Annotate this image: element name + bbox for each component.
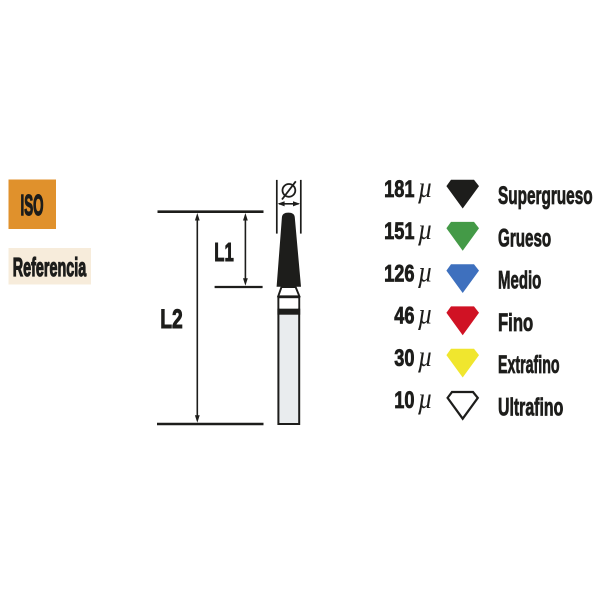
svg-text:Grueso: Grueso <box>498 224 551 252</box>
svg-text:30: 30 <box>394 345 414 372</box>
svg-text:Ultrafino: Ultrafino <box>498 393 563 421</box>
svg-text:L2: L2 <box>160 304 183 334</box>
svg-text:L1: L1 <box>214 237 234 267</box>
svg-text:ISO: ISO <box>21 190 44 222</box>
svg-text:Supergrueso: Supergrueso <box>498 182 593 210</box>
svg-text:181: 181 <box>384 176 414 203</box>
svg-text:µ: µ <box>418 340 433 373</box>
svg-text:µ: µ <box>418 213 433 246</box>
svg-text:46: 46 <box>394 303 414 330</box>
svg-text:µ: µ <box>418 255 433 288</box>
svg-text:Medio: Medio <box>498 267 541 295</box>
svg-text:151: 151 <box>384 218 414 245</box>
svg-text:µ: µ <box>418 298 433 331</box>
svg-text:10: 10 <box>394 387 414 414</box>
svg-text:Extrafino: Extrafino <box>498 351 560 379</box>
svg-text:126: 126 <box>384 260 414 287</box>
svg-text:Referencia: Referencia <box>13 252 87 282</box>
svg-text:µ: µ <box>418 382 433 415</box>
svg-text:µ: µ <box>418 171 433 204</box>
svg-text:Fino: Fino <box>498 309 533 337</box>
